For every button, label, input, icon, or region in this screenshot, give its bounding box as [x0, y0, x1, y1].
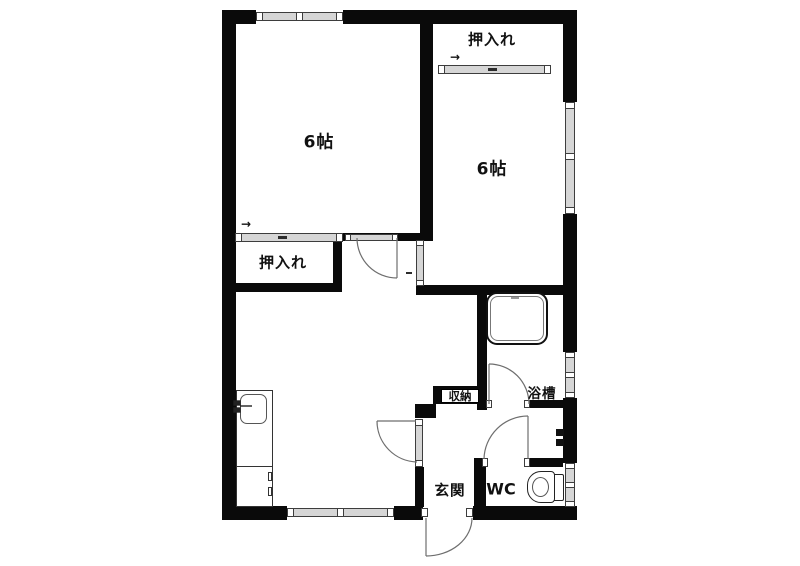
window-right-wc-end-top — [565, 463, 575, 469]
sliding-door-closet-mid-tick — [278, 236, 287, 239]
doorframe-room1-dk — [345, 234, 398, 241]
storage-label: 収納 — [449, 388, 472, 404]
slide-arrow-mid-closet: → — [241, 218, 251, 230]
wc-label: WC — [486, 480, 515, 499]
door-arc-wc — [484, 416, 528, 459]
outer-wall-left — [222, 10, 236, 520]
outer-wall-right-seg1 — [563, 10, 577, 102]
sliding-door-closet-mid-end-left — [235, 233, 242, 242]
sliding-door-closet-top-end-left — [438, 65, 445, 74]
door-swing-overlay — [0, 0, 800, 566]
room-label-top-right: 6帖 — [477, 155, 508, 180]
wall-step — [415, 404, 436, 418]
outer-wall-right-seg3 — [563, 398, 577, 463]
doorframe-room1-dk-end-left — [345, 234, 351, 241]
storage-box: 収納 — [441, 389, 479, 403]
sliding-door-closet-top-tick — [488, 68, 497, 71]
outer-wall-bottom-seg1 — [222, 506, 287, 520]
door-arc-room1-dk — [357, 238, 397, 278]
toilet-seat — [532, 477, 549, 497]
wall-wc-top — [528, 458, 563, 467]
room-label-top-left: 6帖 — [304, 128, 335, 153]
outer-wall-top-right-seg — [343, 10, 577, 24]
outer-wall-right-seg2 — [563, 214, 577, 352]
door-arc-dk-hall — [377, 421, 417, 462]
sliding-door-room2-dk-end-top — [416, 240, 424, 246]
closet-label-mid-left: 押入れ — [259, 252, 307, 273]
sliding-door-room2-dk-end-bottom — [416, 280, 424, 286]
outer-wall-bottom-seg2 — [394, 506, 423, 520]
bathtub-label: 浴槽 — [528, 382, 557, 402]
kitchen-cabinet-handle-2 — [268, 487, 272, 496]
window-bottom-end-right — [387, 508, 394, 517]
slide-arrow-top-closet: → — [450, 51, 460, 63]
sliding-door-closet-top-end-right — [544, 65, 551, 74]
wall-room-divider — [420, 24, 433, 241]
floor-plan: 収納 6帖 6帖 押入れ 押入れ 浴槽 玄関 WC → → — [0, 0, 800, 566]
sliding-door-closet-mid-end-right — [336, 233, 343, 242]
outer-wall-right-seg4 — [563, 507, 577, 520]
doorframe-dk-hall-end-bottom — [415, 460, 423, 467]
sliding-door-closet-mid — [235, 233, 343, 242]
doorframe-room1-dk-end-right — [392, 234, 398, 241]
kitchen-counter-divider — [236, 466, 273, 467]
wall-dk-entrance — [415, 467, 424, 507]
window-right-bath-end-top — [565, 352, 575, 358]
window-top-end-left — [256, 12, 263, 21]
window-bottom-end-left — [287, 508, 294, 517]
window-top-end-right — [336, 12, 343, 21]
door-arc-entrance — [426, 518, 472, 556]
doorframe-wc-left — [482, 458, 488, 467]
window-top-mid — [296, 12, 303, 21]
doorframe-wc-right — [524, 458, 530, 467]
window-right-wc-mid — [565, 482, 575, 488]
window-bottom-mid — [337, 508, 344, 517]
window-right-room2-end-top — [565, 102, 575, 109]
door-arc-bathroom — [489, 364, 529, 404]
kitchen-cabinet-handle-1 — [268, 472, 272, 481]
bathtub-overflow-mark — [511, 297, 519, 299]
laundry-tap-icon-upper — [556, 429, 564, 436]
window-right-bath-end-bottom — [565, 392, 575, 398]
window-right-room2-end-bottom — [565, 207, 575, 214]
wall-closet-mid-bottom — [222, 283, 342, 292]
doorframe-entrance-right — [466, 508, 473, 517]
window-right-bath-mid — [565, 372, 575, 378]
window-right-wc-end-bottom — [565, 501, 575, 507]
window-right-room2-mid — [565, 153, 575, 160]
bathtub-inner-rim — [490, 296, 544, 341]
outer-wall-bottom-seg3 — [473, 506, 577, 520]
entrance-label: 玄関 — [435, 480, 466, 501]
doorframe-bath-left — [486, 400, 492, 408]
sliding-door-room2-dk-tick — [406, 272, 412, 274]
doorframe-entrance-left — [421, 508, 428, 517]
closet-label-top-right: 押入れ — [468, 29, 516, 50]
kitchen-sink — [240, 394, 267, 424]
doorframe-dk-hall-end-top — [415, 419, 423, 426]
laundry-tap-icon-lower — [556, 439, 564, 446]
